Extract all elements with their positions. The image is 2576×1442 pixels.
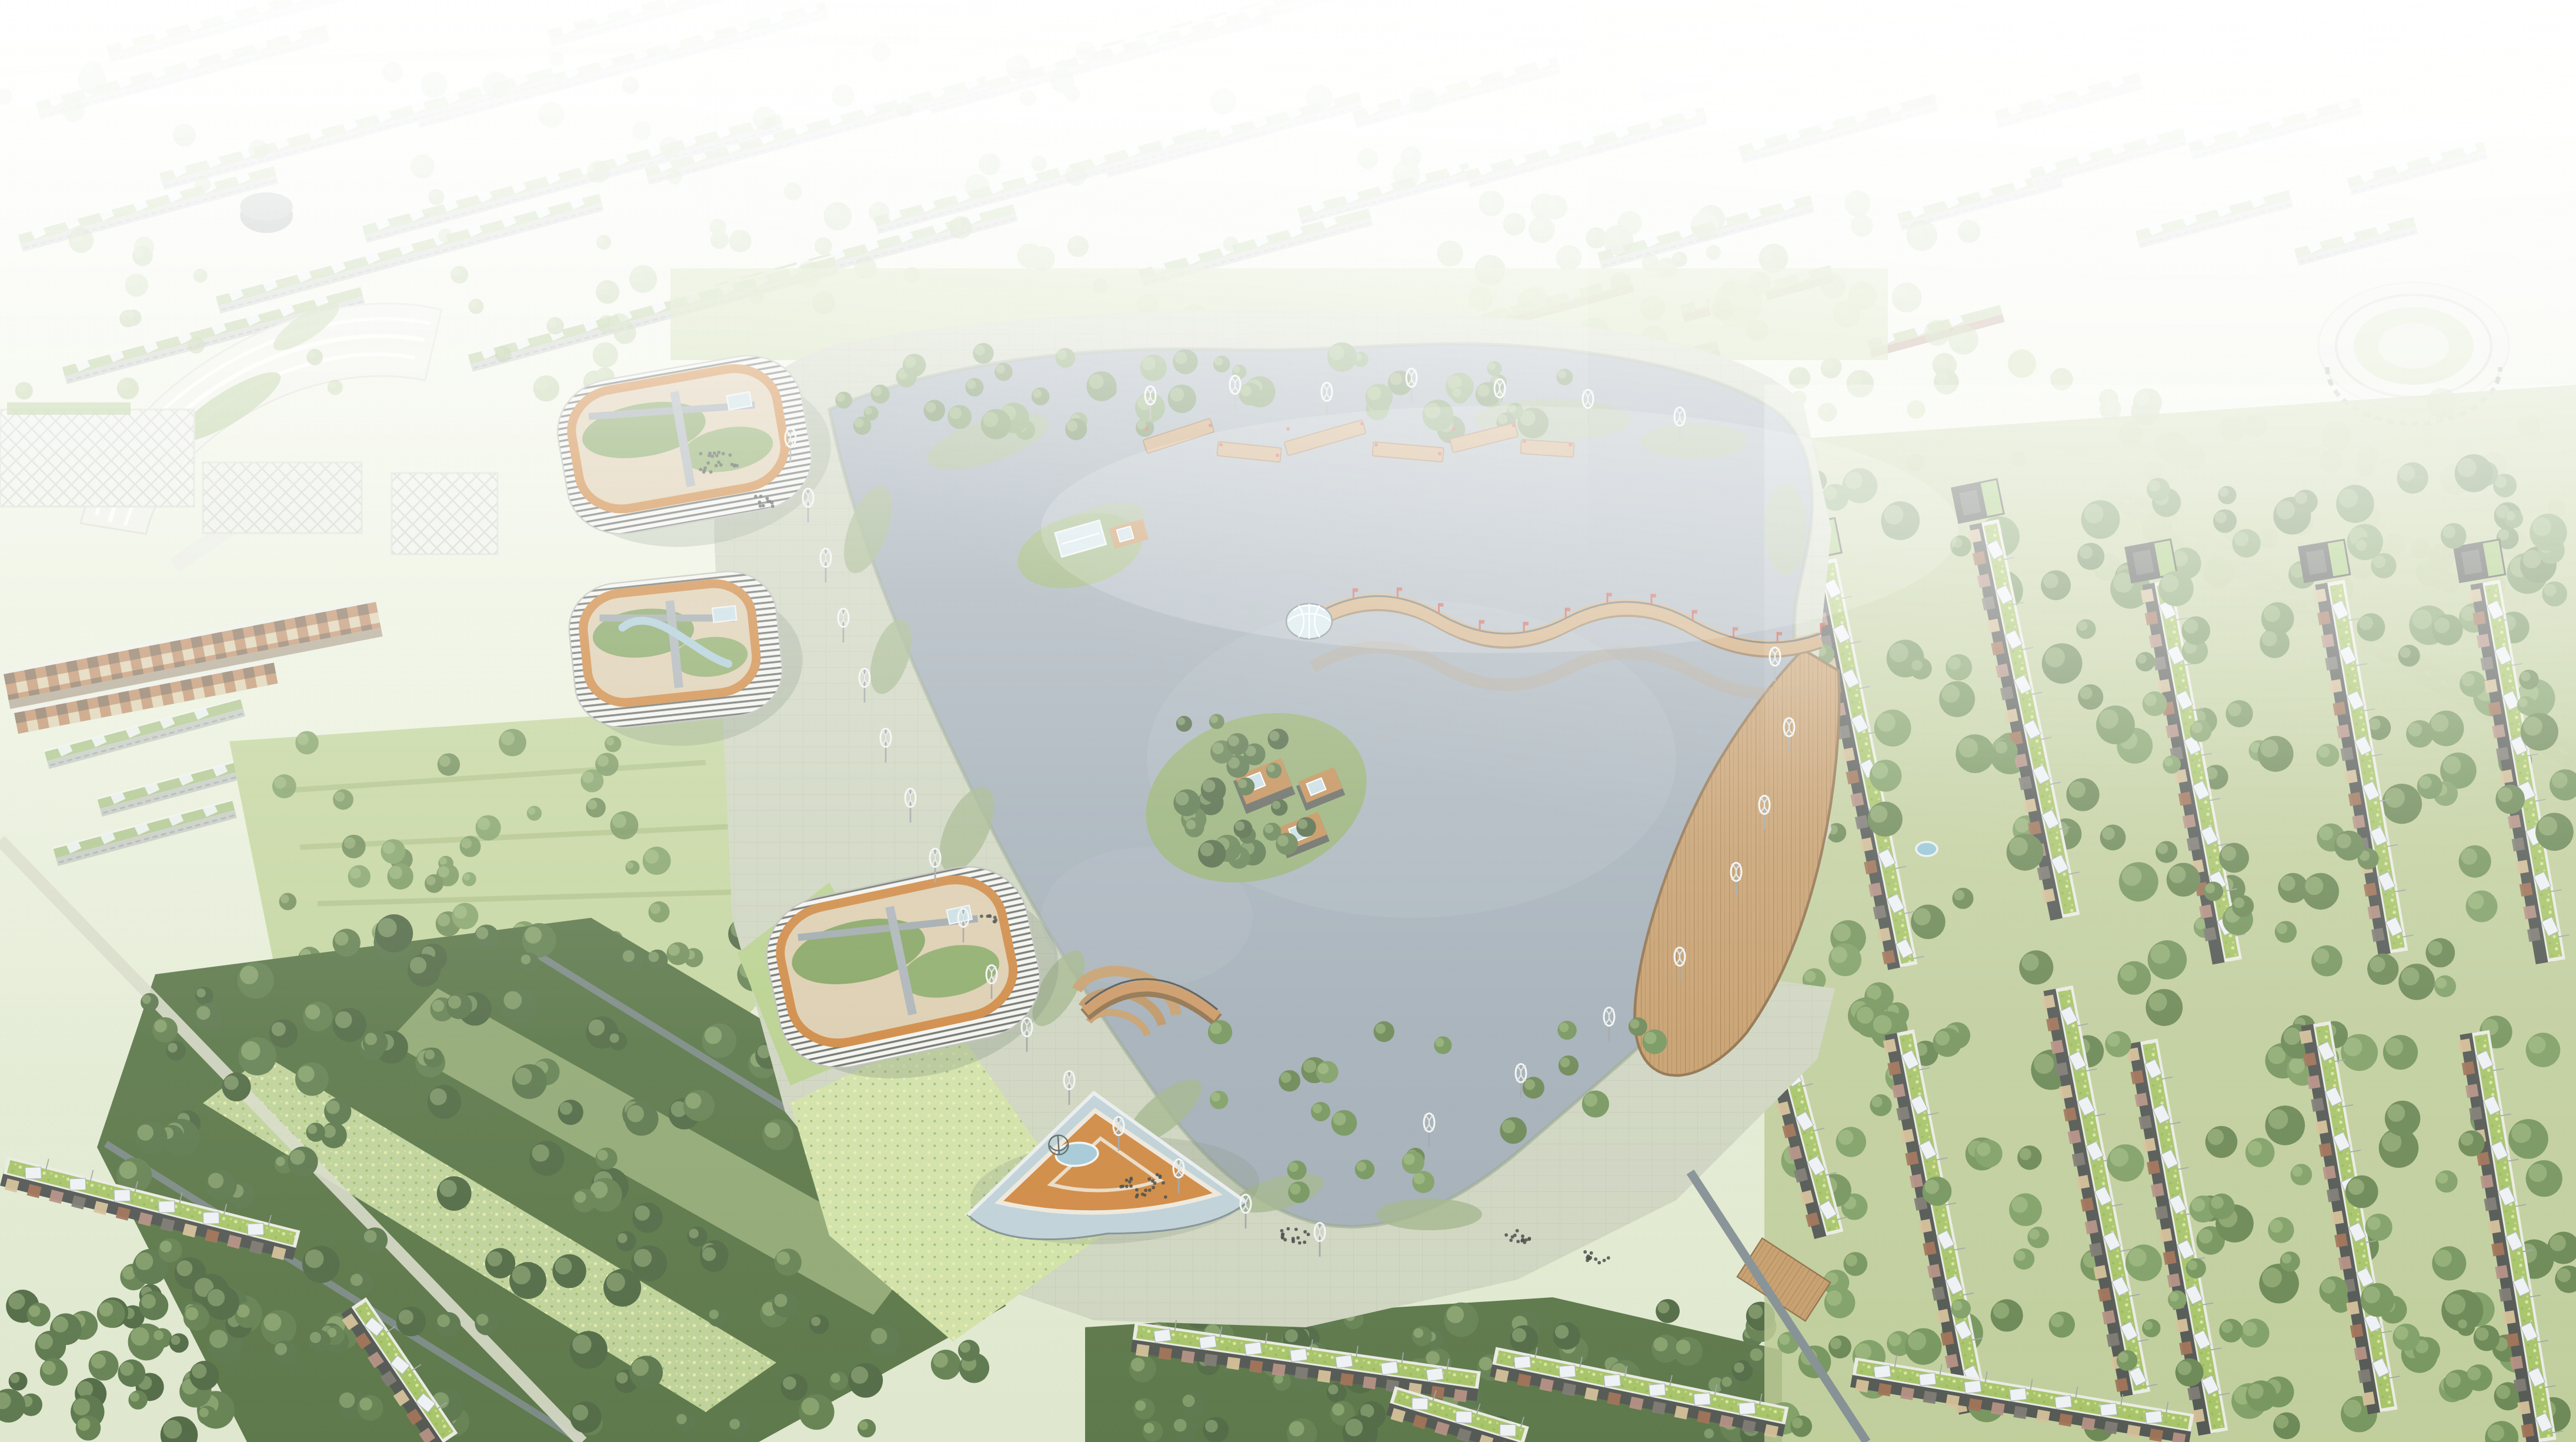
ecocity-aerial-rendering [0, 0, 2576, 1442]
haze-overlay [0, 0, 2576, 1442]
